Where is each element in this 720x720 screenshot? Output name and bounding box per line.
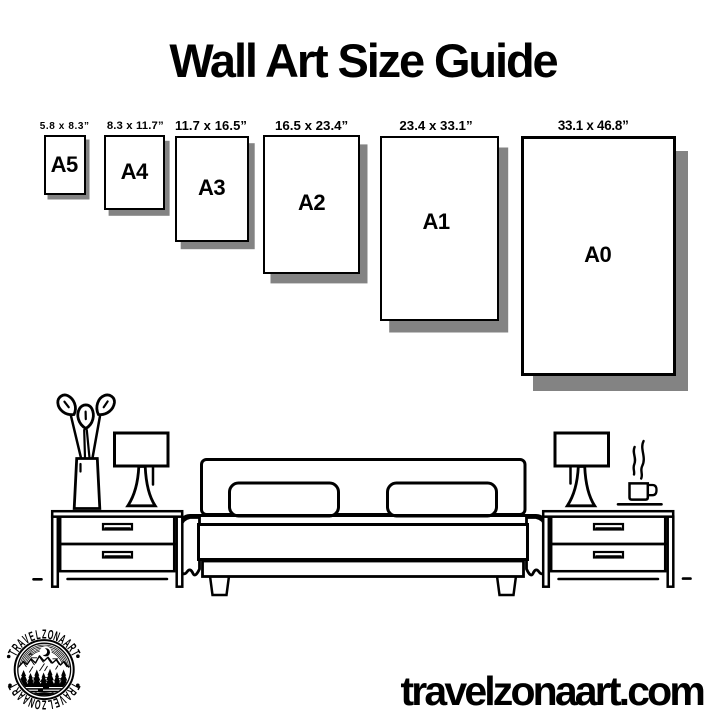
svg-text:Z: Z [42,697,47,712]
svg-text:Z: Z [42,627,47,642]
